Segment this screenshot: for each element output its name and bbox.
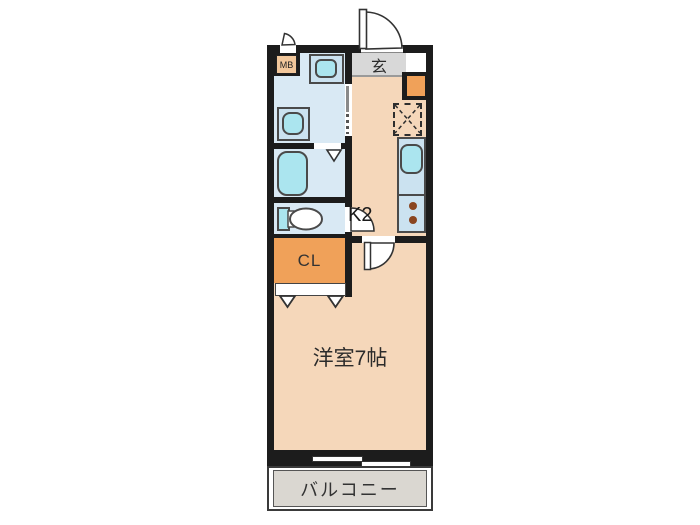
kitchen-label: K2 xyxy=(348,204,372,227)
stove-burner-icon xyxy=(409,202,417,210)
toilet-tank-icon xyxy=(277,207,290,231)
wall xyxy=(345,240,352,297)
entrance-area: 玄 xyxy=(352,53,406,77)
washing-machine-icon xyxy=(315,59,337,78)
closet: CL xyxy=(274,238,345,283)
meter-box-door-icon xyxy=(282,34,295,46)
washroom-door-track xyxy=(346,114,349,134)
wall xyxy=(267,45,274,466)
closet-folding-door-icon xyxy=(275,283,346,296)
stove-burner-icon xyxy=(409,216,417,224)
balcony-area: バルコニー xyxy=(273,470,427,507)
washbasin-bowl-icon xyxy=(282,112,304,135)
sliding-window-icon xyxy=(312,456,363,462)
bathroom-door-gap xyxy=(314,143,341,149)
refrigerator-space-icon xyxy=(393,103,422,136)
shoe-cabinet-icon xyxy=(407,76,425,96)
bathtub-icon xyxy=(277,151,308,196)
kitchen-sink-icon xyxy=(400,144,423,174)
entrance-door-sill xyxy=(361,46,403,53)
entrance-door-swing-icon xyxy=(360,10,403,50)
closet-label: CL xyxy=(298,251,322,271)
wall xyxy=(274,197,345,203)
western-room-label: 洋室7帖 xyxy=(274,342,426,372)
counter-divider xyxy=(397,194,426,196)
meter-box-label: MB xyxy=(280,60,294,70)
balcony-label: バルコニー xyxy=(300,476,400,502)
meter-box-door-gap xyxy=(280,45,296,53)
room-door-gap xyxy=(362,236,395,243)
entrance-step-line xyxy=(352,75,406,77)
floor-plan: 玄 MB CL バルコニー xyxy=(0,0,700,525)
wall xyxy=(426,45,433,466)
meter-box: MB xyxy=(276,55,297,74)
washroom-door-panel xyxy=(346,86,349,112)
entrance-label: 玄 xyxy=(371,53,387,77)
